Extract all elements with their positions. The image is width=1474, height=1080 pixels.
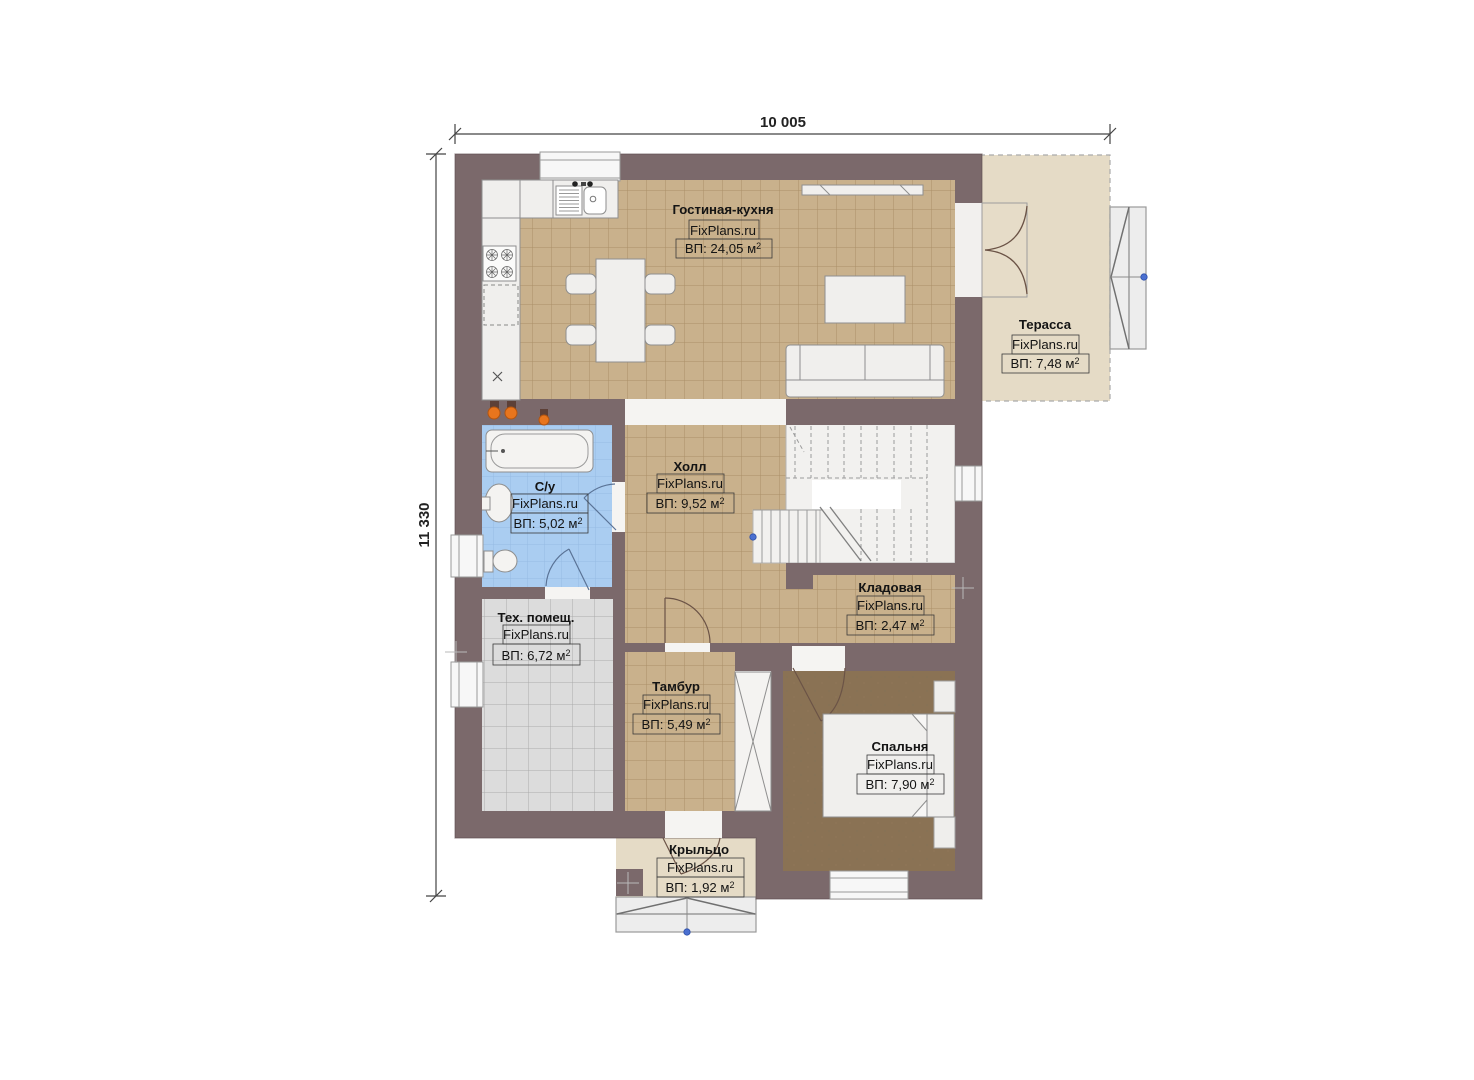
svg-text:ВП: 7,90 м2: ВП: 7,90 м2: [865, 777, 934, 792]
svg-text:Крыльцо: Крыльцо: [669, 842, 729, 857]
svg-text:С/у: С/у: [535, 479, 556, 494]
svg-text:Тамбур: Тамбур: [652, 679, 700, 694]
svg-text:FixPlans.ru: FixPlans.ru: [503, 627, 569, 642]
svg-text:11 330: 11 330: [416, 502, 433, 547]
svg-text:Кладовая: Кладовая: [858, 580, 921, 595]
svg-text:ВП: 24,05 м2: ВП: 24,05 м2: [685, 241, 761, 256]
svg-text:FixPlans.ru: FixPlans.ru: [857, 598, 923, 613]
svg-text:ВП: 6,72 м2: ВП: 6,72 м2: [501, 648, 570, 663]
svg-text:Холл: Холл: [673, 459, 706, 474]
svg-text:ВП: 5,02 м2: ВП: 5,02 м2: [513, 516, 582, 531]
svg-text:Терасса: Терасса: [1019, 317, 1072, 332]
svg-text:FixPlans.ru: FixPlans.ru: [690, 223, 756, 238]
svg-text:ВП: 2,47 м2: ВП: 2,47 м2: [855, 618, 924, 633]
svg-text:ВП: 1,92 м2: ВП: 1,92 м2: [665, 880, 734, 895]
svg-text:ВП: 5,49 м2: ВП: 5,49 м2: [641, 717, 710, 732]
svg-text:ВП: 7,48 м2: ВП: 7,48 м2: [1010, 356, 1079, 371]
svg-text:10 005: 10 005: [760, 114, 806, 131]
svg-text:Тех. помещ.: Тех. помещ.: [498, 610, 575, 625]
svg-text:ВП: 9,52 м2: ВП: 9,52 м2: [655, 496, 724, 511]
svg-text:Гостиная-кухня: Гостиная-кухня: [672, 202, 773, 217]
svg-text:FixPlans.ru: FixPlans.ru: [667, 860, 733, 875]
svg-text:Спальня: Спальня: [872, 739, 929, 754]
svg-text:FixPlans.ru: FixPlans.ru: [643, 697, 709, 712]
svg-text:FixPlans.ru: FixPlans.ru: [657, 476, 723, 491]
svg-text:FixPlans.ru: FixPlans.ru: [512, 496, 578, 511]
svg-text:FixPlans.ru: FixPlans.ru: [1012, 337, 1078, 352]
svg-text:FixPlans.ru: FixPlans.ru: [867, 757, 933, 772]
